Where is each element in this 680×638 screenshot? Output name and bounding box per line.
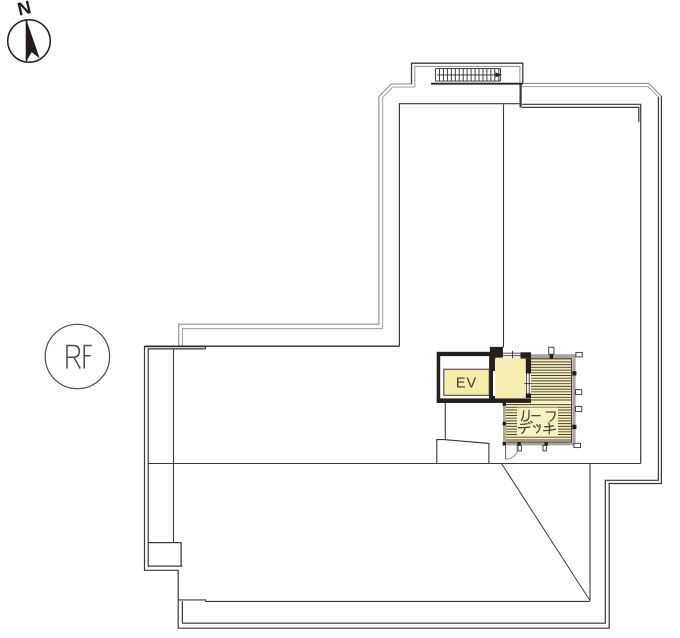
svg-text:EV: EV [456,376,477,392]
